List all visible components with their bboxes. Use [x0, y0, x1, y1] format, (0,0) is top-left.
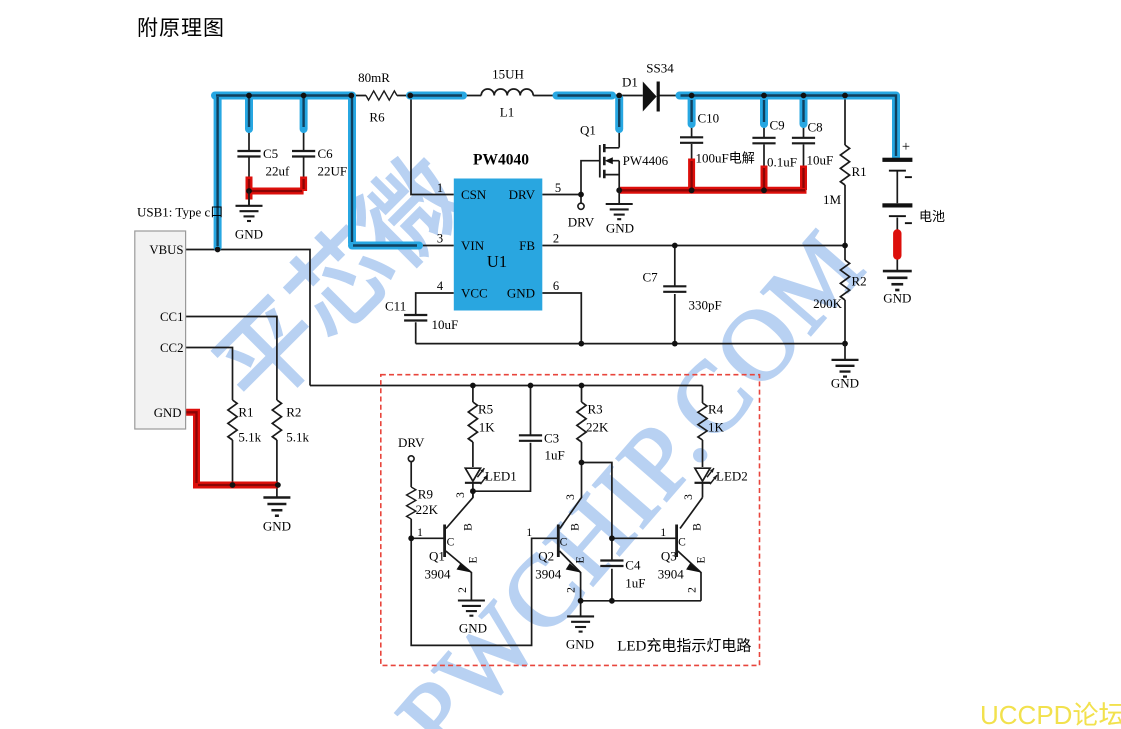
svg-text:3: 3 — [565, 494, 577, 500]
svg-text:PW4040: PW4040 — [473, 152, 529, 169]
svg-text:C8: C8 — [808, 120, 823, 135]
svg-text:C6: C6 — [318, 146, 334, 161]
svg-text:FB: FB — [519, 238, 535, 253]
svg-text:DRV: DRV — [398, 435, 425, 450]
svg-text:3904: 3904 — [658, 567, 685, 582]
svg-text:200K: 200K — [813, 296, 843, 311]
svg-text:C: C — [678, 537, 686, 549]
svg-text:5.1k: 5.1k — [286, 430, 309, 445]
svg-text:R4: R4 — [708, 402, 724, 417]
svg-text:100uF电解: 100uF电解 — [696, 151, 755, 166]
svg-text:C: C — [447, 537, 455, 549]
svg-text:CC1: CC1 — [160, 310, 183, 324]
svg-text:+: + — [902, 139, 910, 155]
svg-text:电池: 电池 — [919, 209, 945, 224]
svg-text:3: 3 — [683, 494, 695, 500]
svg-text:3904: 3904 — [535, 567, 562, 582]
svg-text:22K: 22K — [586, 420, 609, 435]
svg-text:C7: C7 — [643, 270, 659, 285]
svg-text:E: E — [468, 556, 480, 563]
svg-text:C5: C5 — [263, 146, 278, 161]
svg-text:DRV: DRV — [568, 215, 595, 230]
svg-text:USB1: Type c口: USB1: Type c口 — [137, 205, 223, 220]
svg-text:C11: C11 — [385, 299, 406, 314]
svg-text:5: 5 — [555, 181, 561, 195]
svg-text:1M: 1M — [823, 192, 842, 207]
svg-text:UCCPD论坛: UCCPD论坛 — [980, 700, 1121, 729]
svg-text:1K: 1K — [479, 420, 496, 435]
svg-text:C10: C10 — [698, 111, 720, 126]
svg-text:C9: C9 — [770, 118, 785, 133]
svg-text:1K: 1K — [708, 420, 725, 435]
svg-text:R2: R2 — [852, 274, 867, 289]
svg-text:Q1: Q1 — [580, 123, 596, 138]
svg-text:PW4406: PW4406 — [623, 153, 669, 168]
svg-text:附原理图: 附原理图 — [137, 16, 225, 40]
svg-text:1: 1 — [660, 527, 666, 539]
svg-text:GND: GND — [566, 637, 594, 652]
svg-text:10uF: 10uF — [432, 317, 459, 332]
svg-text:0.1uF: 0.1uF — [767, 155, 797, 170]
svg-text:D1: D1 — [622, 75, 638, 90]
svg-text:B: B — [570, 523, 582, 531]
svg-text:330pF: 330pF — [689, 298, 722, 313]
svg-text:GND: GND — [459, 621, 487, 636]
svg-text:4: 4 — [437, 279, 444, 293]
svg-text:5.1k: 5.1k — [238, 430, 261, 445]
svg-text:LED1: LED1 — [485, 469, 517, 484]
svg-text:GND: GND — [831, 376, 859, 391]
svg-text:VCC: VCC — [461, 286, 488, 301]
svg-text:R1: R1 — [852, 164, 867, 179]
svg-text:B: B — [692, 523, 704, 531]
svg-text:1uF: 1uF — [625, 576, 645, 591]
svg-text:R3: R3 — [588, 402, 603, 417]
svg-text:LED2: LED2 — [716, 469, 748, 484]
svg-text:1: 1 — [526, 527, 532, 539]
svg-text:3: 3 — [437, 232, 443, 246]
svg-text:SS34: SS34 — [646, 61, 674, 76]
svg-text:GND: GND — [263, 519, 291, 534]
svg-text:22uf: 22uf — [266, 164, 291, 179]
svg-text:VBUS: VBUS — [149, 243, 183, 257]
svg-text:R5: R5 — [478, 402, 493, 417]
svg-text:2: 2 — [566, 587, 578, 593]
svg-text:2: 2 — [687, 587, 699, 593]
svg-text:Q1: Q1 — [429, 549, 445, 564]
svg-text:L1: L1 — [500, 105, 514, 120]
svg-text:1: 1 — [417, 527, 423, 539]
svg-text:GND: GND — [154, 406, 182, 420]
svg-text:LED充电指示灯电路: LED充电指示灯电路 — [617, 638, 751, 655]
svg-text:R9: R9 — [418, 487, 433, 502]
svg-text:3904: 3904 — [425, 567, 452, 582]
svg-text:GND: GND — [606, 221, 634, 236]
svg-text:3: 3 — [455, 492, 467, 498]
svg-text:GND: GND — [507, 286, 535, 301]
svg-text:Q2: Q2 — [538, 549, 554, 564]
svg-text:U1: U1 — [487, 252, 507, 271]
svg-text:6: 6 — [553, 279, 559, 293]
svg-text:R6: R6 — [369, 110, 385, 125]
svg-text:R2: R2 — [286, 405, 301, 420]
svg-text:E: E — [696, 556, 708, 563]
svg-text:C: C — [560, 537, 568, 549]
svg-text:R1: R1 — [238, 405, 253, 420]
svg-text:B: B — [463, 523, 475, 531]
svg-text:GND: GND — [883, 291, 911, 306]
svg-text:CC2: CC2 — [160, 341, 183, 355]
svg-text:1: 1 — [437, 181, 443, 195]
svg-text:22UF: 22UF — [318, 164, 348, 179]
svg-text:Q3: Q3 — [661, 549, 677, 564]
svg-text:1uF: 1uF — [545, 448, 565, 463]
svg-text:GND: GND — [235, 227, 263, 242]
svg-text:CSN: CSN — [461, 187, 487, 202]
svg-text:2: 2 — [457, 587, 469, 593]
svg-text:C4: C4 — [625, 558, 641, 573]
svg-text:22K: 22K — [416, 502, 439, 517]
svg-text:15UH: 15UH — [492, 67, 524, 82]
svg-text:80mR: 80mR — [358, 70, 390, 85]
svg-text:DRV: DRV — [509, 187, 536, 202]
svg-text:10uF: 10uF — [807, 153, 834, 168]
svg-text:C3: C3 — [544, 431, 559, 446]
svg-text:2: 2 — [553, 232, 559, 246]
svg-text:VIN: VIN — [461, 238, 485, 253]
svg-text:E: E — [575, 556, 587, 563]
